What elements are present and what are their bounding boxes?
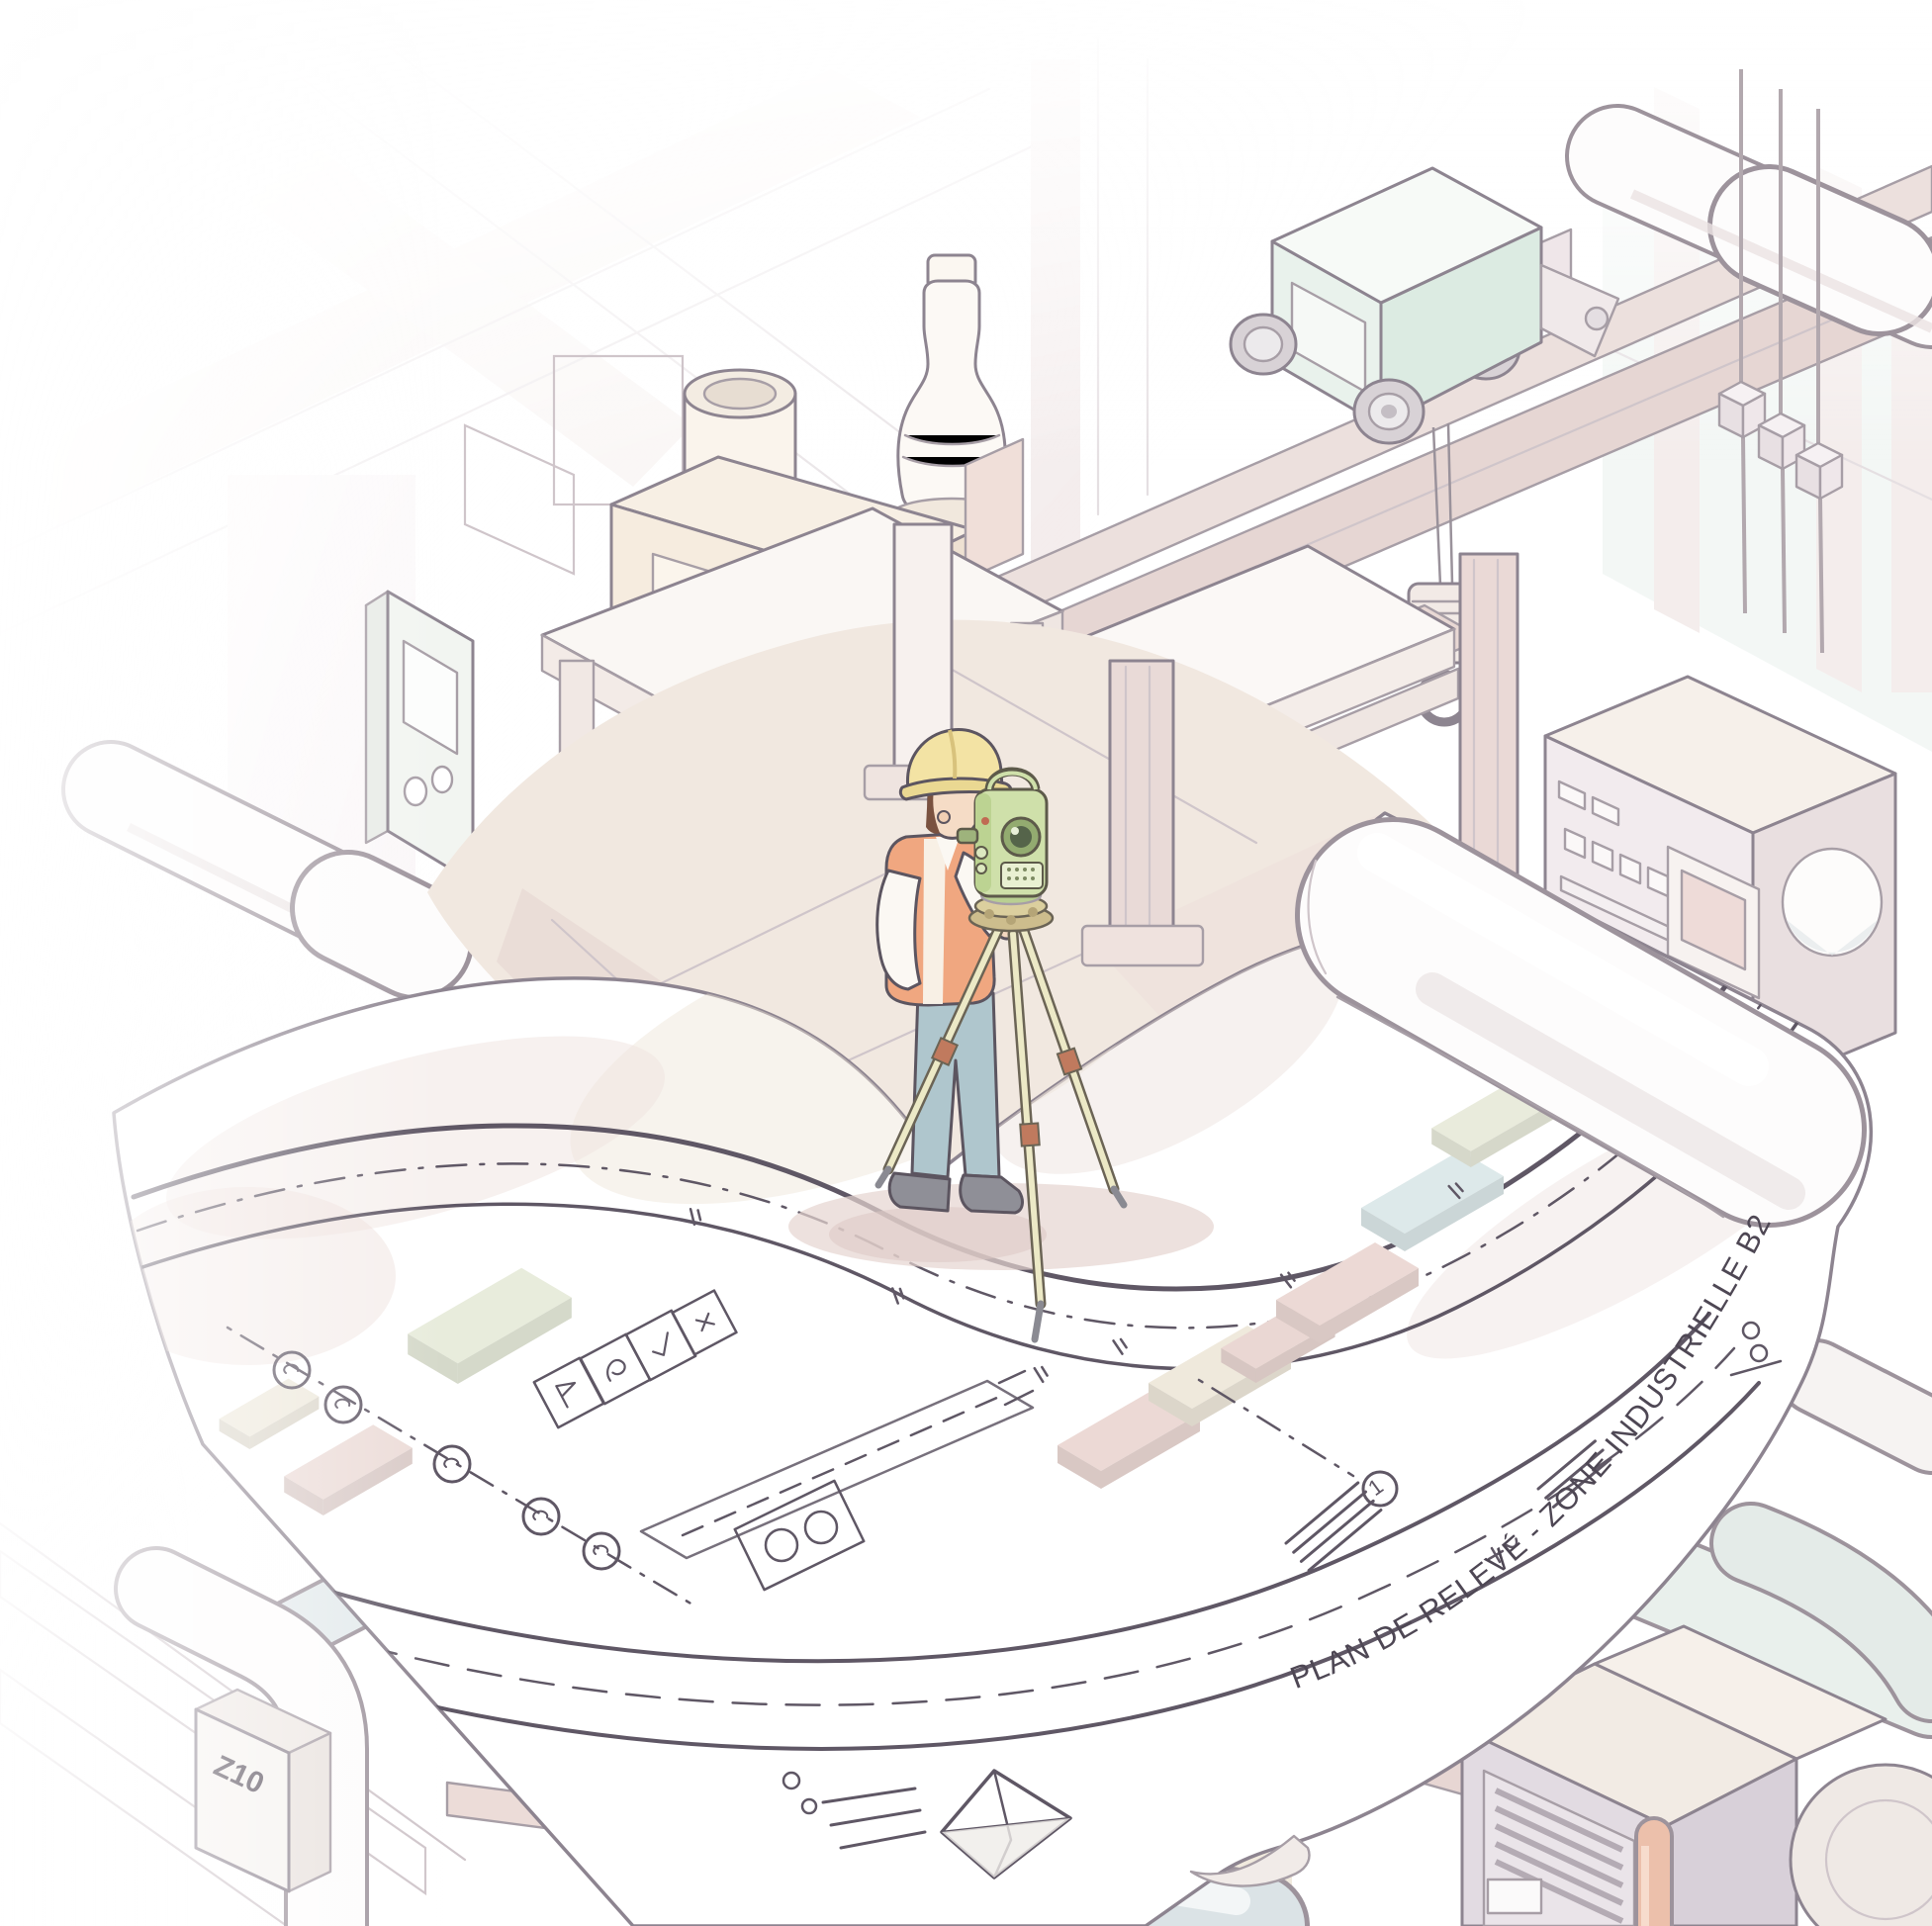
illustration-canvas: Z10 xyxy=(0,0,1932,1926)
left-fade xyxy=(0,0,1932,1926)
industrial-survey-illustration: Z10 xyxy=(0,0,1932,1926)
